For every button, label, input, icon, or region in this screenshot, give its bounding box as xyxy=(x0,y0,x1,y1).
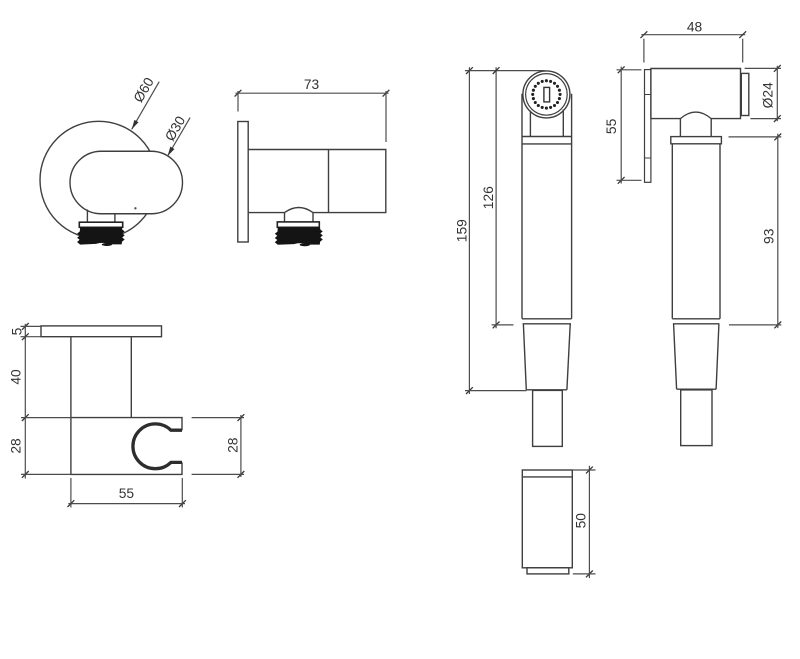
svg-text:40: 40 xyxy=(9,369,24,385)
svg-text:5: 5 xyxy=(9,327,24,335)
svg-text:73: 73 xyxy=(304,77,320,92)
svg-text:55: 55 xyxy=(604,118,619,134)
svg-text:55: 55 xyxy=(119,486,135,501)
svg-text:28: 28 xyxy=(8,438,23,454)
svg-text:93: 93 xyxy=(762,228,777,244)
svg-text:159: 159 xyxy=(454,219,469,242)
svg-text:48: 48 xyxy=(687,20,703,35)
svg-text:28: 28 xyxy=(225,437,240,453)
svg-text:126: 126 xyxy=(481,186,496,209)
svg-text:50: 50 xyxy=(574,513,589,529)
svg-text:Ø24: Ø24 xyxy=(761,82,776,108)
